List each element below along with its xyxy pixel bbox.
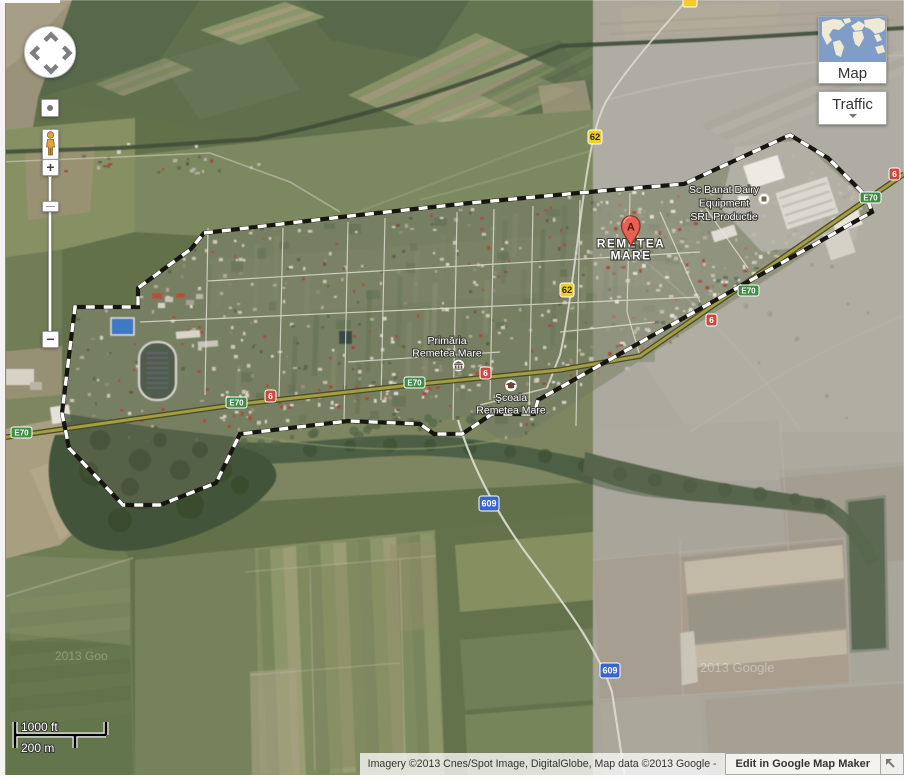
svg-text:609: 609 — [481, 499, 496, 509]
svg-text:62: 62 — [562, 285, 573, 296]
svg-text:2013 Google: 2013 Google — [700, 660, 774, 675]
svg-text:2013 Goo: 2013 Goo — [55, 649, 108, 663]
svg-text:A: A — [627, 222, 635, 234]
svg-text:E70: E70 — [741, 287, 756, 296]
svg-text:6: 6 — [483, 368, 488, 378]
svg-text:609: 609 — [602, 666, 617, 676]
svg-text:62: 62 — [590, 132, 601, 143]
svg-text:E70: E70 — [14, 429, 29, 438]
svg-text:E70: E70 — [229, 399, 244, 408]
svg-text:E70: E70 — [407, 379, 422, 388]
svg-text:6: 6 — [892, 169, 897, 179]
svg-text:6: 6 — [268, 391, 273, 401]
svg-text:1000 ft: 1000 ft — [21, 720, 58, 734]
svg-text:6: 6 — [709, 315, 714, 325]
svg-text:E70: E70 — [863, 194, 878, 203]
